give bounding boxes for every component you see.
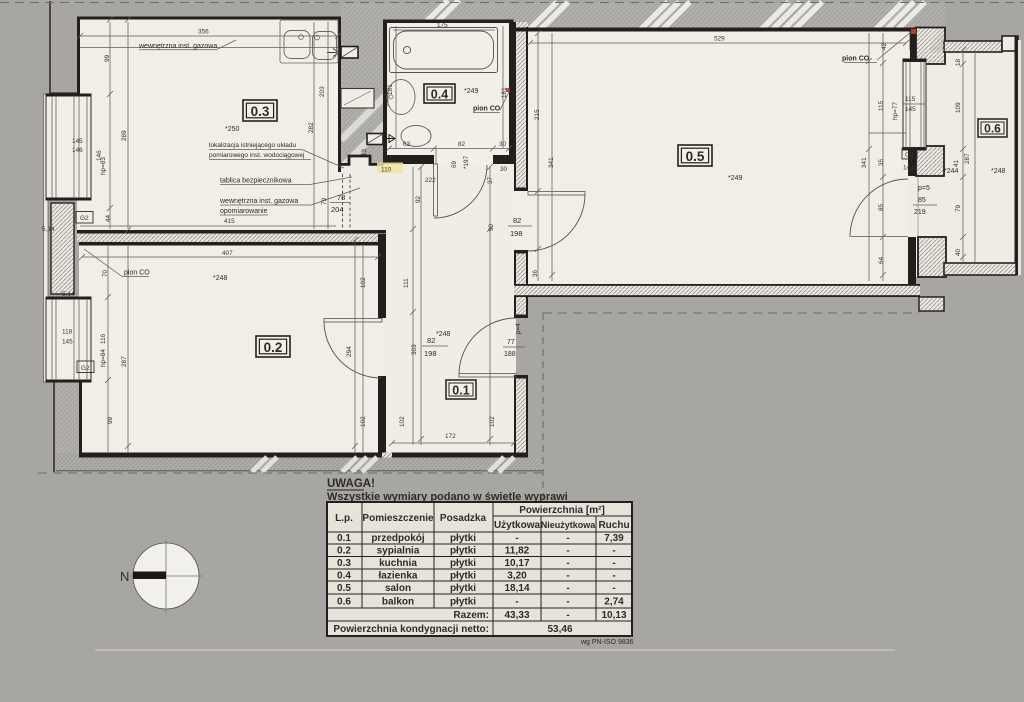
svg-text:0.2: 0.2 <box>264 340 283 355</box>
svg-text:Posadzka: Posadzka <box>440 513 487 524</box>
svg-text:0.2: 0.2 <box>337 546 351 557</box>
svg-text:-: - <box>612 571 615 582</box>
svg-text:*250: *250 <box>225 126 240 133</box>
svg-text:3,20: 3,20 <box>507 571 527 582</box>
svg-text:53,46: 53,46 <box>547 624 572 635</box>
svg-text:płytki: płytki <box>450 558 476 569</box>
svg-text:175: 175 <box>437 22 448 29</box>
svg-text:79: 79 <box>321 197 328 205</box>
svg-text:lokalizacja istniejącego układ: lokalizacja istniejącego układu <box>209 142 296 149</box>
svg-text:płytki: płytki <box>450 571 476 582</box>
svg-text:Powierzchnia kondygnacji netto: Powierzchnia kondygnacji netto: <box>333 624 489 635</box>
svg-text:kuchnia: kuchnia <box>379 558 417 569</box>
svg-text:-: - <box>515 597 518 608</box>
svg-text:82: 82 <box>513 216 521 225</box>
svg-text:-: - <box>612 546 615 557</box>
svg-text:102: 102 <box>399 416 406 427</box>
svg-text:balkon: balkon <box>382 597 414 608</box>
svg-text:7,39: 7,39 <box>604 533 624 544</box>
svg-text:5,14: 5,14 <box>42 226 55 233</box>
svg-text:0.1: 0.1 <box>337 533 351 544</box>
svg-text:hp=77: hp=77 <box>892 102 899 120</box>
svg-text:Użytkowa: Użytkowa <box>494 520 541 531</box>
svg-text:118: 118 <box>62 329 73 336</box>
svg-text:18,14: 18,14 <box>504 583 529 594</box>
svg-text:102: 102 <box>489 416 496 427</box>
svg-text:40: 40 <box>955 248 962 256</box>
svg-text:wewnętrzna inst. gazowa: wewnętrzna inst. gazowa <box>219 198 298 205</box>
svg-text:*197: *197 <box>463 155 470 169</box>
svg-text:L.p.: L.p. <box>335 513 353 524</box>
svg-text:opomiarowanie: opomiarowanie <box>220 208 268 215</box>
svg-text:188: 188 <box>504 351 516 358</box>
svg-text:hp=84: hp=84 <box>100 349 107 367</box>
svg-text:181: 181 <box>501 87 508 98</box>
svg-text:37: 37 <box>487 176 494 184</box>
svg-text:pion CO: pion CO <box>473 106 501 113</box>
svg-text:92: 92 <box>415 195 422 203</box>
svg-text:294: 294 <box>346 346 353 357</box>
svg-text:-: - <box>515 533 518 544</box>
svg-text:*249: *249 <box>728 175 743 182</box>
svg-text:14,5: 14,5 <box>903 165 916 172</box>
svg-text:0.5: 0.5 <box>337 583 351 594</box>
svg-text:-: - <box>566 583 569 594</box>
svg-text:78: 78 <box>337 193 345 202</box>
svg-text:203: 203 <box>319 86 326 97</box>
svg-text:2,74: 2,74 <box>604 597 624 608</box>
svg-text:salon: salon <box>385 583 411 594</box>
svg-text:198: 198 <box>424 349 437 358</box>
svg-text:82: 82 <box>427 336 435 345</box>
svg-text:-: - <box>566 610 569 621</box>
svg-text:*248: *248 <box>991 168 1006 175</box>
svg-text:Powierzchnia [m²]: Powierzchnia [m²] <box>519 505 605 516</box>
svg-text:G2: G2 <box>80 215 89 222</box>
svg-text:płytki: płytki <box>450 597 476 608</box>
svg-text:85: 85 <box>918 197 926 204</box>
svg-text:356: 356 <box>198 29 209 36</box>
svg-text:10,13: 10,13 <box>601 610 626 621</box>
svg-text:341: 341 <box>548 157 555 168</box>
svg-text:341: 341 <box>861 157 868 168</box>
svg-text:303: 303 <box>411 344 418 355</box>
svg-text:77: 77 <box>507 339 515 346</box>
svg-text:płytki: płytki <box>450 546 476 557</box>
svg-text:289: 289 <box>121 130 128 141</box>
svg-text:-: - <box>566 558 569 569</box>
svg-text:198: 198 <box>510 229 523 238</box>
svg-text:79: 79 <box>955 204 962 212</box>
svg-text:UWAGA!: UWAGA! <box>327 478 375 490</box>
svg-text:p=5: p=5 <box>918 185 930 192</box>
svg-text:287: 287 <box>964 153 971 164</box>
svg-text:99: 99 <box>104 54 111 62</box>
svg-text:145: 145 <box>62 339 73 346</box>
svg-text:35: 35 <box>878 158 885 166</box>
svg-text:36: 36 <box>532 269 539 277</box>
svg-text:0.4: 0.4 <box>431 88 448 102</box>
svg-text:0.5: 0.5 <box>686 149 705 164</box>
svg-text:Nieużytkowa: Nieużytkowa <box>541 520 597 530</box>
svg-text:64: 64 <box>878 256 885 264</box>
svg-text:pion CO: pion CO <box>842 56 870 63</box>
svg-text:-: - <box>566 546 569 557</box>
svg-text:44: 44 <box>105 214 112 222</box>
svg-text:Pomieszczenie: Pomieszczenie <box>362 513 434 524</box>
svg-text:116: 116 <box>100 333 107 344</box>
svg-text:43,33: 43,33 <box>504 610 529 621</box>
svg-text:płytki: płytki <box>450 583 476 594</box>
svg-text:102: 102 <box>360 416 367 427</box>
svg-text:111: 111 <box>403 278 410 288</box>
svg-text:Razem:: Razem: <box>453 610 489 621</box>
svg-text:-: - <box>566 571 569 582</box>
svg-text:181: 181 <box>387 84 394 95</box>
svg-text:*248: *248 <box>436 331 451 338</box>
svg-text:hp=83: hp=83 <box>100 157 107 175</box>
svg-text:70: 70 <box>102 269 109 277</box>
svg-text:-: - <box>612 558 615 569</box>
svg-text:G2: G2 <box>81 365 90 372</box>
svg-text:115: 115 <box>905 96 916 103</box>
svg-text:-: - <box>566 533 569 544</box>
svg-text:*249: *249 <box>464 88 479 95</box>
svg-text:5,14: 5,14 <box>62 291 75 298</box>
svg-text:łazienka: łazienka <box>379 571 418 582</box>
svg-text:wewnętrzna inst. gazowa: wewnętrzna inst. gazowa <box>138 43 217 50</box>
svg-text:204: 204 <box>331 205 344 214</box>
svg-text:90: 90 <box>488 223 495 231</box>
svg-text:-: - <box>566 597 569 608</box>
svg-text:G2: G2 <box>905 152 914 159</box>
svg-text:tablica bezpiecznikowa: tablica bezpiecznikowa <box>220 178 292 185</box>
svg-text:219: 219 <box>914 209 926 216</box>
svg-text:215: 215 <box>534 109 541 120</box>
svg-text:0.1: 0.1 <box>452 384 469 398</box>
svg-text:42: 42 <box>881 42 888 50</box>
svg-text:Ruchu: Ruchu <box>598 520 629 531</box>
svg-text:-: - <box>612 583 615 594</box>
svg-text:145: 145 <box>72 138 83 145</box>
svg-text:pomiarowego inst. wodociągowej: pomiarowego inst. wodociągowej <box>209 152 304 159</box>
svg-text:222: 222 <box>425 177 436 184</box>
svg-text:145: 145 <box>905 106 916 113</box>
svg-text:172: 172 <box>445 433 456 440</box>
svg-text:287: 287 <box>121 356 128 367</box>
svg-text:p=4: p=4 <box>515 323 522 334</box>
svg-text:30: 30 <box>499 141 507 148</box>
svg-text:102: 102 <box>360 277 367 288</box>
svg-text:płytki: płytki <box>450 533 476 544</box>
svg-text:146: 146 <box>72 147 83 154</box>
svg-text:0.4: 0.4 <box>337 571 351 582</box>
svg-text:63: 63 <box>403 141 411 148</box>
svg-text:82: 82 <box>458 141 466 148</box>
svg-text:99: 99 <box>107 416 114 424</box>
svg-text:115: 115 <box>878 100 885 111</box>
svg-text:109: 109 <box>955 102 962 113</box>
svg-text:wg PN-ISO 9836: wg PN-ISO 9836 <box>580 639 634 646</box>
svg-text:415: 415 <box>224 218 235 225</box>
svg-text:10,17: 10,17 <box>504 558 529 569</box>
svg-text:282: 282 <box>308 122 315 133</box>
svg-text:sypialnia: sypialnia <box>377 546 420 557</box>
svg-text:30: 30 <box>500 166 508 173</box>
svg-text:41: 41 <box>953 159 960 167</box>
svg-text:*248: *248 <box>213 275 228 282</box>
svg-text:pion CO: pion CO <box>124 270 150 277</box>
svg-text:0.6: 0.6 <box>337 597 351 608</box>
svg-text:0.3: 0.3 <box>337 558 351 569</box>
svg-text:0.6: 0.6 <box>984 122 1001 136</box>
svg-text:*244: *244 <box>944 168 959 175</box>
svg-text:przedpokój: przedpokój <box>371 533 425 544</box>
svg-text:0.3: 0.3 <box>251 104 270 119</box>
svg-text:18: 18 <box>955 58 962 66</box>
svg-text:110: 110 <box>381 167 392 174</box>
svg-text:69: 69 <box>451 160 458 168</box>
svg-text:13: 13 <box>361 148 368 156</box>
svg-text:N: N <box>120 569 129 584</box>
svg-text:407: 407 <box>222 250 233 257</box>
svg-text:85: 85 <box>878 203 885 211</box>
svg-text:529: 529 <box>714 36 725 43</box>
svg-text:11,82: 11,82 <box>505 546 530 557</box>
